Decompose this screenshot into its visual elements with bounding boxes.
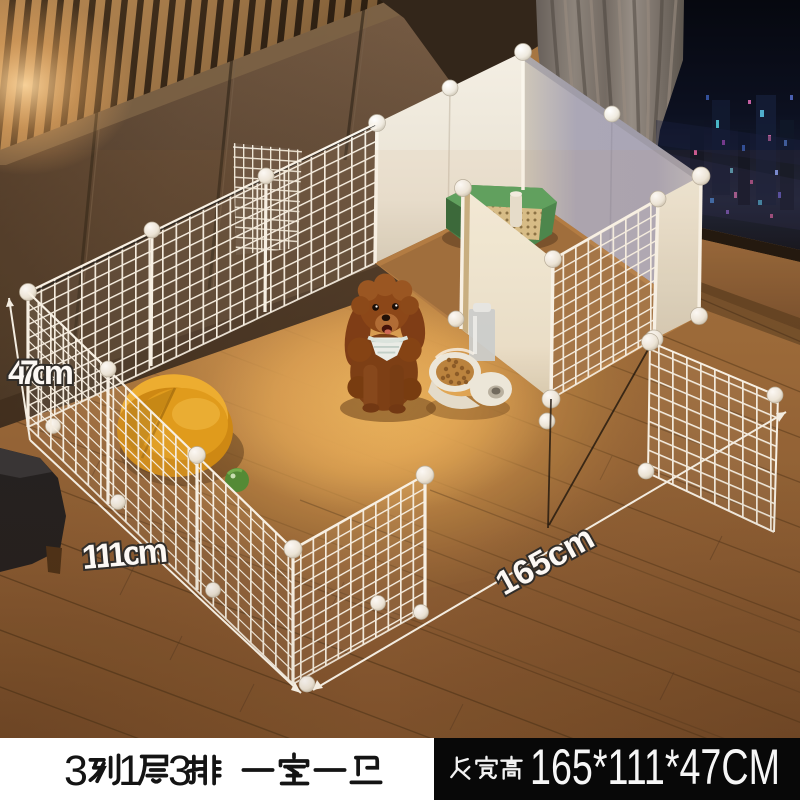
- svg-text:1: 1: [118, 747, 142, 795]
- svg-text:3: 3: [64, 747, 88, 795]
- svg-text:165*111*47CM: 165*111*47CM: [530, 739, 780, 795]
